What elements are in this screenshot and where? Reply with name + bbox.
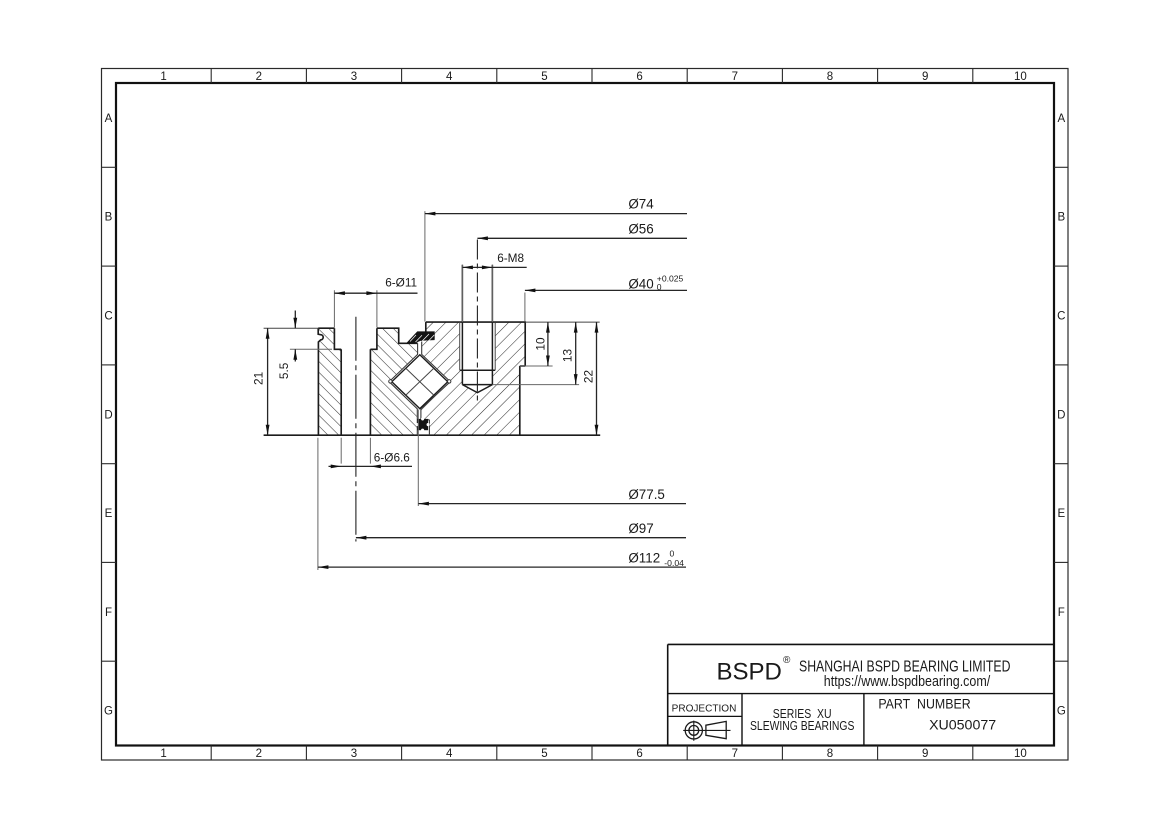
svg-text:5.5: 5.5 xyxy=(277,362,291,379)
svg-text:Ø97: Ø97 xyxy=(628,521,653,536)
svg-text:F: F xyxy=(105,607,112,619)
svg-text:22: 22 xyxy=(581,370,595,383)
svg-text:5: 5 xyxy=(541,748,547,760)
svg-text:1: 1 xyxy=(160,71,166,83)
svg-text:-0.04: -0.04 xyxy=(664,558,684,568)
svg-text:B: B xyxy=(105,212,113,224)
svg-text:6: 6 xyxy=(636,748,642,760)
svg-text:2: 2 xyxy=(256,71,262,83)
svg-text:10: 10 xyxy=(1014,748,1027,760)
svg-text:8: 8 xyxy=(827,748,833,760)
svg-text:Ø74: Ø74 xyxy=(628,197,654,212)
svg-text:6-Ø11: 6-Ø11 xyxy=(385,276,417,290)
svg-text:8: 8 xyxy=(827,71,833,83)
svg-text:4: 4 xyxy=(446,748,453,760)
svg-text:1: 1 xyxy=(160,748,166,760)
svg-text:21: 21 xyxy=(252,372,266,385)
svg-text:9: 9 xyxy=(922,71,928,83)
svg-text:G: G xyxy=(104,706,113,718)
svg-text:9: 9 xyxy=(922,748,928,760)
svg-text:A: A xyxy=(105,113,113,125)
svg-text:10: 10 xyxy=(1014,71,1027,83)
svg-text:0: 0 xyxy=(670,548,675,558)
svg-text:SHANGHAI BSPD BEARING LIMITED: SHANGHAI BSPD BEARING LIMITED xyxy=(799,658,1011,675)
svg-text:A: A xyxy=(1057,113,1065,125)
svg-text:D: D xyxy=(1057,409,1065,421)
svg-text:®: ® xyxy=(783,655,791,666)
svg-text:13: 13 xyxy=(561,349,575,363)
svg-text:3: 3 xyxy=(351,71,357,83)
svg-text:6: 6 xyxy=(636,71,642,83)
svg-text:D: D xyxy=(104,409,112,421)
svg-text:3: 3 xyxy=(351,748,357,760)
svg-text:SLEWING BEARINGS: SLEWING BEARINGS xyxy=(750,718,855,733)
svg-text:Ø40: Ø40 xyxy=(628,276,653,291)
svg-text:4: 4 xyxy=(446,71,453,83)
svg-text:Ø56: Ø56 xyxy=(628,221,653,236)
svg-text:C: C xyxy=(1057,311,1065,323)
svg-text:0: 0 xyxy=(657,282,662,292)
svg-text:C: C xyxy=(104,311,112,323)
svg-text:PROJECTION: PROJECTION xyxy=(672,704,737,715)
svg-text:PART NUMBER: PART NUMBER xyxy=(878,697,970,712)
svg-text:7: 7 xyxy=(732,71,738,83)
svg-text:E: E xyxy=(105,508,113,520)
svg-text:BSPD: BSPD xyxy=(717,659,782,686)
svg-text:https://www.bspdbearing.com/: https://www.bspdbearing.com/ xyxy=(824,674,991,690)
svg-text:F: F xyxy=(1058,607,1065,619)
svg-text:7: 7 xyxy=(732,748,738,760)
svg-text:E: E xyxy=(1057,508,1065,520)
svg-text:Ø77.5: Ø77.5 xyxy=(628,487,664,502)
svg-text:6-Ø6.6: 6-Ø6.6 xyxy=(374,451,411,465)
svg-text:6-M8: 6-M8 xyxy=(497,251,524,265)
svg-text:XU050077: XU050077 xyxy=(929,718,996,734)
svg-text:G: G xyxy=(1057,706,1066,718)
svg-text:Ø112: Ø112 xyxy=(628,550,660,565)
svg-text:10: 10 xyxy=(533,337,547,351)
svg-text:5: 5 xyxy=(541,71,547,83)
svg-text:B: B xyxy=(1057,212,1065,224)
svg-text:2: 2 xyxy=(256,748,262,760)
